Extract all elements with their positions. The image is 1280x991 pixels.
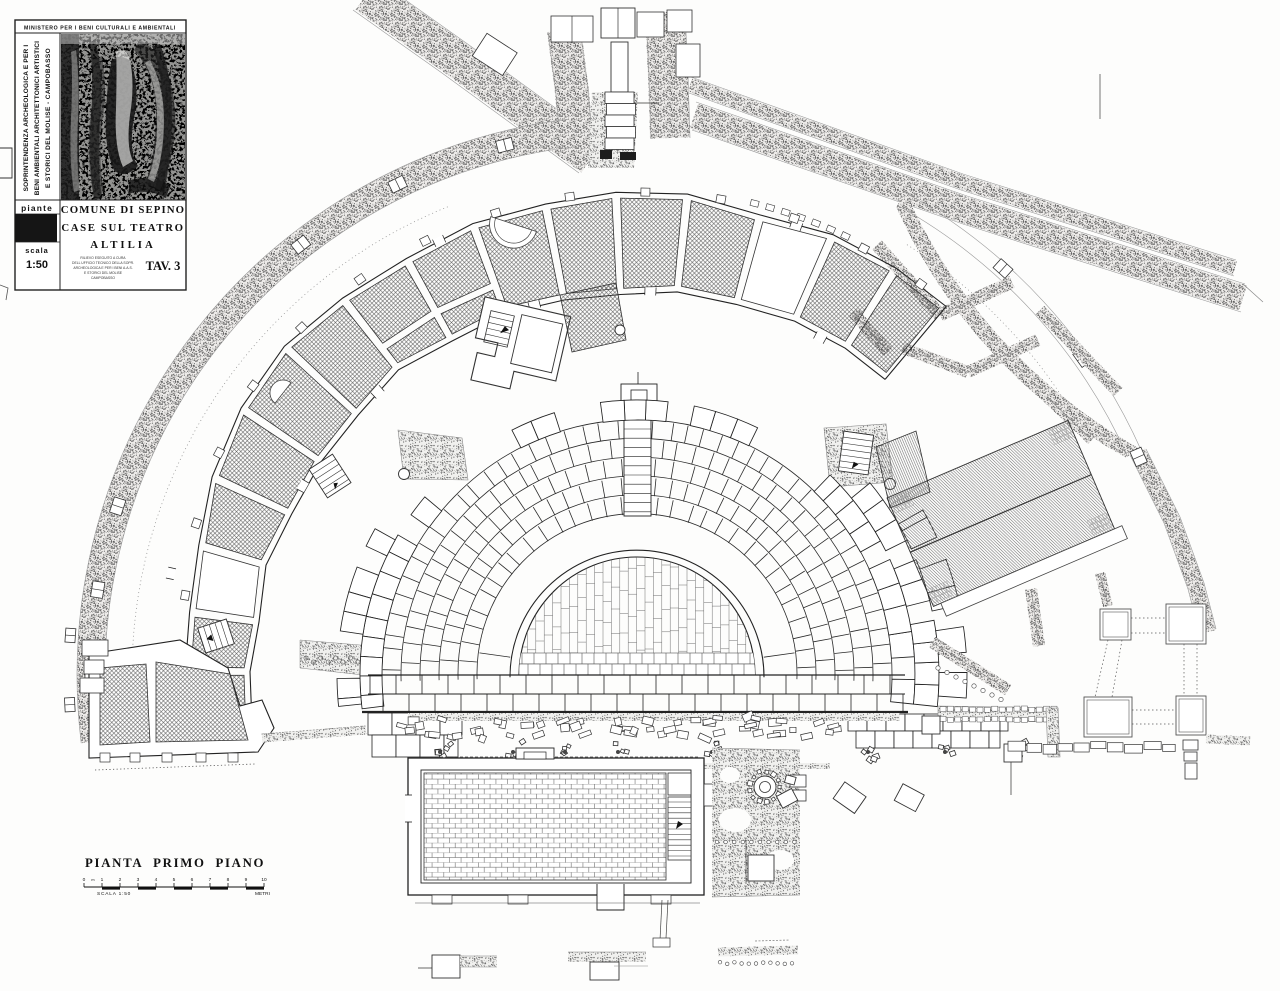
svg-text:0: 0 [83,877,86,883]
svg-text:CASE SUL TEATRO: CASE SUL TEATRO [61,222,184,234]
svg-text:RILIEVO ESEGUITO A CURA: RILIEVO ESEGUITO A CURA [80,256,126,260]
svg-text:9: 9 [245,877,248,883]
svg-text:1:50: 1:50 [26,259,48,271]
svg-text:8: 8 [227,877,230,883]
svg-text:1: 1 [101,877,104,883]
svg-text:E STORICI DEL MOLISE: E STORICI DEL MOLISE [84,271,123,275]
svg-text:DELL UFFICIO TECNICO DELLA SOP: DELL UFFICIO TECNICO DELLA SOPR. [72,261,134,265]
svg-text:SCALA 1:50: SCALA 1:50 [97,891,131,897]
svg-text:CAMPOBASSO: CAMPOBASSO [91,276,115,280]
svg-text:10: 10 [261,877,267,883]
svg-text:3: 3 [137,877,140,883]
svg-text:ALTILIA: ALTILIA [90,239,156,251]
svg-text:METRI: METRI [255,891,270,897]
svg-text:MINISTERO PER I BENI CULTURALI: MINISTERO PER I BENI CULTURALI E AMBIENT… [24,26,176,32]
svg-text:2: 2 [119,877,122,883]
svg-text:SOPRINTENDENZA ARCHEOLOGICA E: SOPRINTENDENZA ARCHEOLOGICA E PER I [23,45,30,192]
svg-text:5: 5 [173,877,176,883]
svg-text:piante: piante [21,203,53,213]
svg-text:6: 6 [191,877,194,883]
svg-text:TAV. 3: TAV. 3 [146,259,181,273]
svg-text:4: 4 [155,877,158,883]
svg-text:E STORICI DEL MOLISE - CAMPOBA: E STORICI DEL MOLISE - CAMPOBASSO [45,48,52,188]
svg-text:7: 7 [209,877,212,883]
svg-text:scala: scala [25,246,49,255]
svg-text:BENI AMBIENTALI ARCHITETTONICI: BENI AMBIENTALI ARCHITETTONICI ARTISTICI [34,41,41,195]
svg-text:m: m [91,878,94,882]
svg-text:PIANTA PRIMO PIANO: PIANTA PRIMO PIANO [85,856,265,870]
svg-text:COMUNE DI SEPINO: COMUNE DI SEPINO [61,204,185,216]
svg-text:ARCHEOLOGICA E PER I BENI A.A: ARCHEOLOGICA E PER I BENI A.A.S. [73,266,132,270]
